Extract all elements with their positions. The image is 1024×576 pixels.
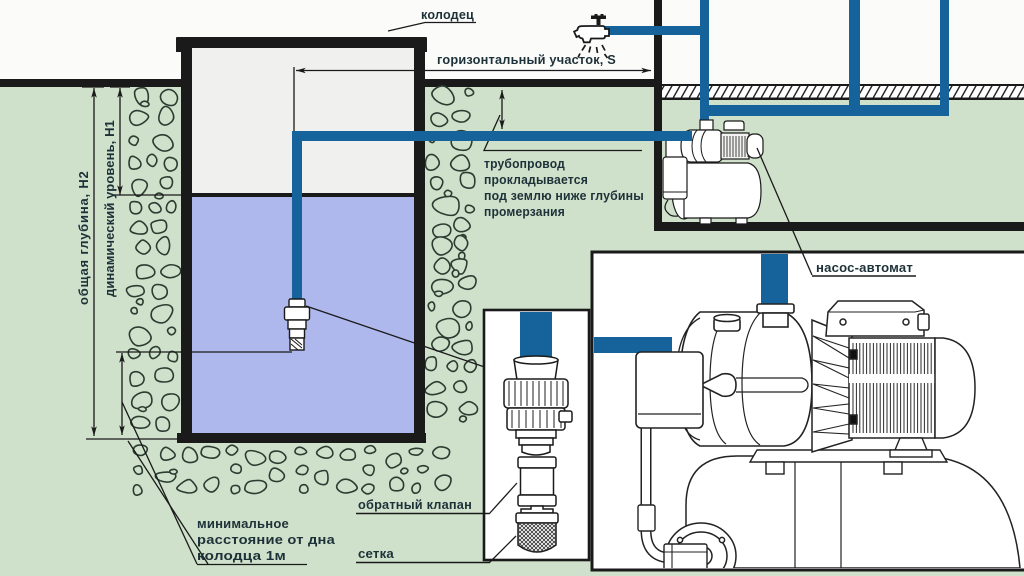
svg-text:расстояние от дна: расстояние от дна [197, 532, 336, 547]
svg-text:динамический уровень, Н1: динамический уровень, Н1 [102, 120, 117, 297]
svg-text:сетка: сетка [358, 546, 395, 561]
svg-text:под землю ниже глубины: под землю ниже глубины [484, 188, 644, 203]
svg-text:промерзания: промерзания [484, 204, 565, 219]
svg-text:насос-автомат: насос-автомат [816, 260, 913, 275]
svg-text:минимальное: минимальное [197, 516, 289, 531]
svg-text:горизонтальный участок, S: горизонтальный участок, S [437, 52, 616, 67]
svg-text:обратный клапан: обратный клапан [358, 497, 472, 512]
svg-text:трубопровод: трубопровод [484, 156, 565, 171]
svg-text:колодца 1м: колодца 1м [197, 548, 286, 563]
svg-text:колодец: колодец [421, 7, 474, 22]
svg-text:общая глубина, Н2: общая глубина, Н2 [76, 171, 91, 305]
svg-text:прокладывается: прокладывается [484, 172, 588, 187]
